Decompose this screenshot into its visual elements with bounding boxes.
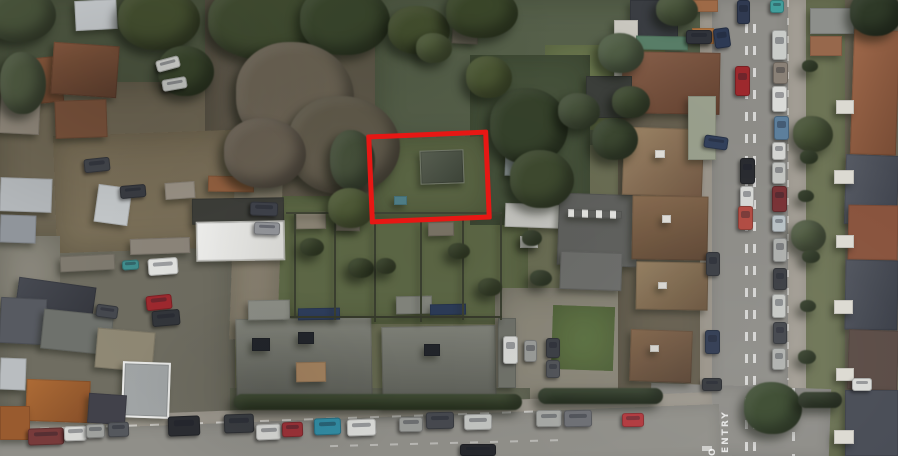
parked-car-grey-brown [773, 62, 788, 84]
main-road-car-teal [314, 418, 342, 436]
parked-van-red-white [738, 206, 753, 230]
junction-car-dark [702, 378, 722, 391]
parked-car-navy-top [737, 0, 750, 24]
yard-car-teal [122, 259, 140, 270]
main-road-car-silver [464, 414, 492, 430]
main-road-car-grey-2 [399, 417, 423, 432]
driving-car-red [735, 66, 750, 96]
parked-car-dark-red [772, 186, 787, 212]
main-road-car-red-2 [622, 413, 644, 427]
parked-car-white-4 [772, 348, 786, 370]
court-car-dark [546, 338, 560, 358]
parked-car-dark [773, 268, 787, 290]
road-marking-text: ENTRY [722, 410, 731, 453]
parked-car-steel-blue [774, 116, 789, 140]
yard-car-dark-2 [95, 304, 119, 320]
court-car-dark-2 [546, 360, 560, 378]
main-road-car-white [64, 426, 88, 442]
main-road-car-grey-4 [564, 410, 592, 427]
aerial-satellite-view[interactable]: ENTRYO [0, 0, 898, 456]
main-road-car-grey [86, 424, 105, 439]
yard-van-white-2 [155, 55, 181, 73]
main-road-car-dark-2 [224, 413, 255, 433]
parked-car-white-3 [772, 142, 786, 160]
yard-car-dark-3 [119, 184, 146, 199]
yard-car-dark [151, 309, 180, 327]
parked-car-white-2 [772, 86, 787, 112]
parked-car-dark-2 [773, 322, 787, 344]
parked-car-black [740, 158, 755, 184]
parked-car-white [772, 30, 787, 60]
parked-car-silver-3 [772, 294, 786, 318]
main-road-car-white-2 [256, 424, 282, 441]
driveway-car-navy [703, 134, 729, 150]
court-car-grey [524, 340, 537, 362]
yard-van-dark [83, 157, 110, 174]
lane-car-grey [254, 222, 280, 236]
main-road-car-red [282, 422, 304, 438]
road-marking-text: O [709, 448, 718, 456]
parked-car-dark-west-1 [706, 252, 720, 276]
parked-car-dark-west-2 [705, 330, 720, 354]
main-road-car-grey-3 [536, 410, 562, 427]
main-road-car-black [168, 415, 201, 436]
driveway-car-white-east [852, 378, 872, 391]
driving-car-black [460, 444, 496, 456]
parked-car-pale-blue [772, 215, 786, 232]
parked-car-silver-2 [773, 238, 787, 262]
main-road-car-darkred [28, 427, 65, 445]
parked-car-navy-angled [713, 27, 732, 49]
yard-van-white-3 [161, 76, 188, 92]
main-road-car-dark [108, 422, 130, 438]
court-car-white [503, 336, 518, 364]
yard-van-white [147, 257, 178, 276]
parked-car-teal [770, 0, 784, 13]
main-road-car-white-3 [347, 418, 377, 436]
parked-car-silver [772, 162, 786, 184]
vehicles-layer [0, 0, 898, 456]
main-road-car-dark-3 [426, 412, 454, 429]
site-boundary-highlight-rectangle [366, 129, 492, 224]
parked-car-white-5 [740, 186, 754, 208]
driveway-car-dark-north [686, 30, 712, 44]
lane-car-dark [250, 202, 278, 217]
